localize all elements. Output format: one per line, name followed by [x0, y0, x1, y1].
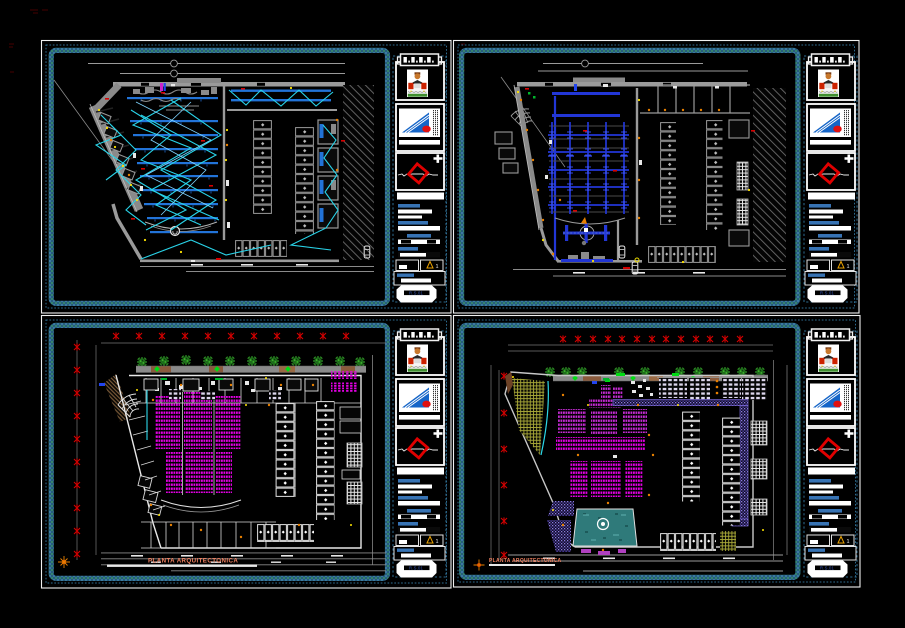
- svg-text:PLANTA ARQUITECTONICA: PLANTA ARQUITECTONICA: [148, 558, 238, 565]
- svg-text:PLANTA ARQUITECTONICA: PLANTA ARQUITECTONICA: [489, 558, 561, 564]
